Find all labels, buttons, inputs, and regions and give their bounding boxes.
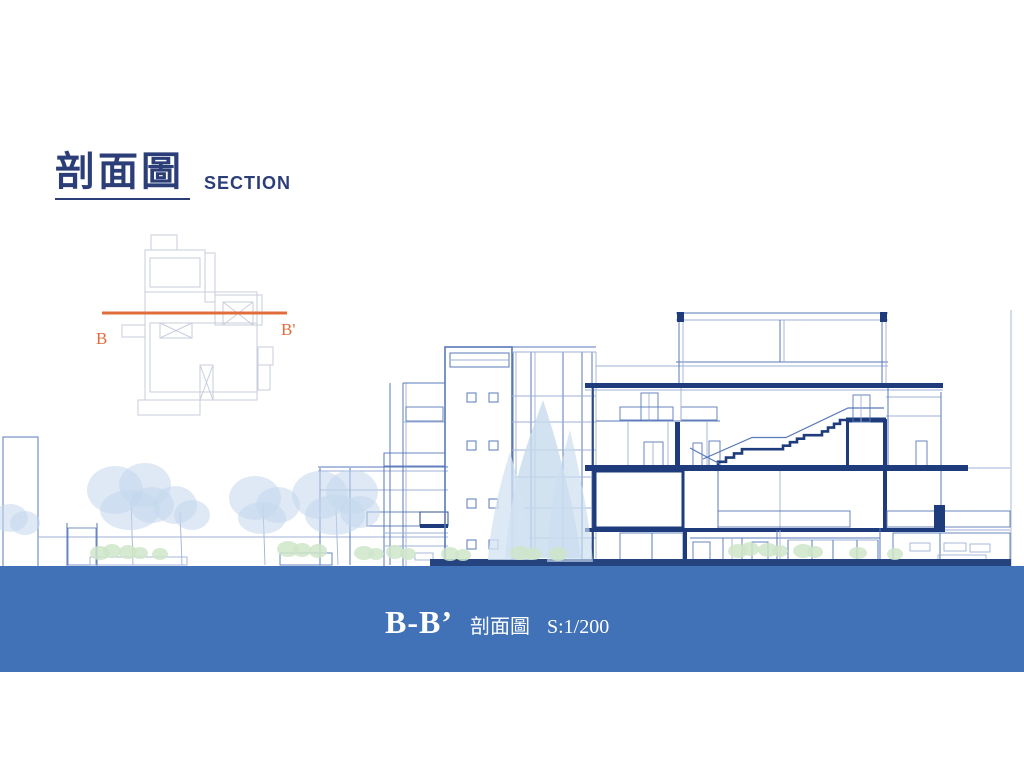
right-rooms: [886, 388, 941, 532]
second-floor: [595, 471, 1010, 532]
caption-scale: S:1/200: [547, 616, 609, 639]
title-subtitle: SECTION: [204, 173, 291, 194]
trees: [0, 400, 593, 565]
upper-floor: [596, 388, 720, 468]
staircase: [690, 395, 887, 470]
roof-slab: [585, 383, 943, 388]
page-title: 剖面圖 SECTION: [55, 150, 291, 200]
site-context: [3, 437, 448, 566]
caption-section-label: B-B’: [385, 604, 453, 641]
roof-pergola: [596, 312, 888, 385]
caption-drawing-name: 剖面圖: [470, 610, 530, 639]
left-building: [367, 383, 448, 566]
lower-floor-slab: [585, 528, 945, 532]
drawing-caption: B-B’ 剖面圖 S:1/200: [385, 604, 609, 641]
tree: [0, 504, 40, 535]
section-building: [585, 310, 1011, 568]
section-drawing: [0, 300, 1024, 568]
title-cjk: 剖面圖: [55, 150, 190, 200]
presentation-slide: 剖面圖 SECTION B: [0, 0, 1024, 768]
